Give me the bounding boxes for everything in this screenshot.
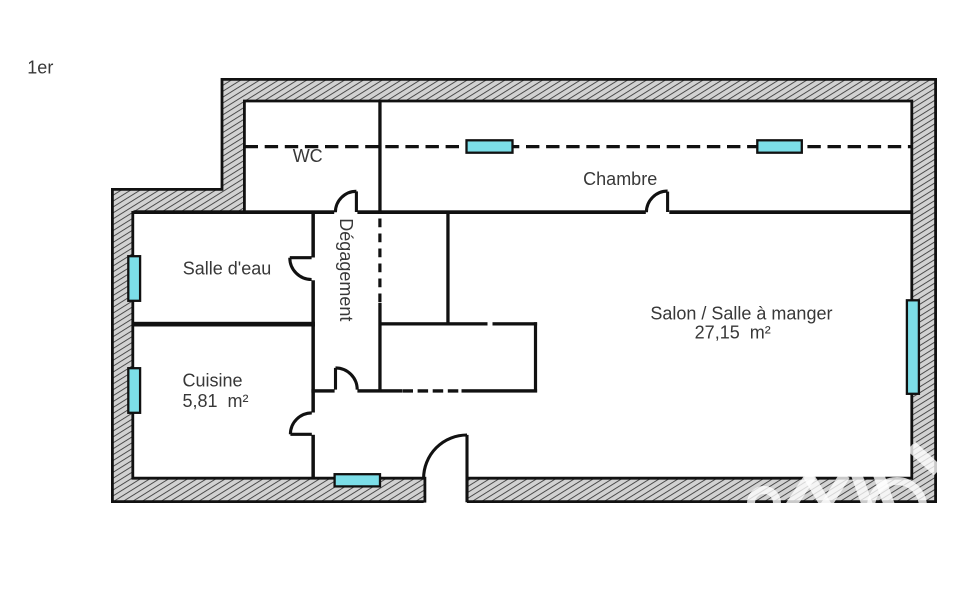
svg-text:Chambre: Chambre	[583, 169, 657, 189]
svg-text:WC: WC	[293, 146, 323, 166]
svg-text:27,15 m²: 27,15 m²	[695, 323, 771, 343]
svg-text:Salle d'eau: Salle d'eau	[183, 259, 272, 279]
svg-text:Salon / Salle à manger: Salon / Salle à manger	[650, 303, 832, 323]
svg-text:1er: 1er	[27, 58, 53, 78]
svg-text:Dégagement: Dégagement	[336, 218, 356, 321]
svg-text:5,81 m²: 5,81 m²	[183, 391, 249, 411]
svg-text:Cuisine: Cuisine	[183, 370, 243, 390]
